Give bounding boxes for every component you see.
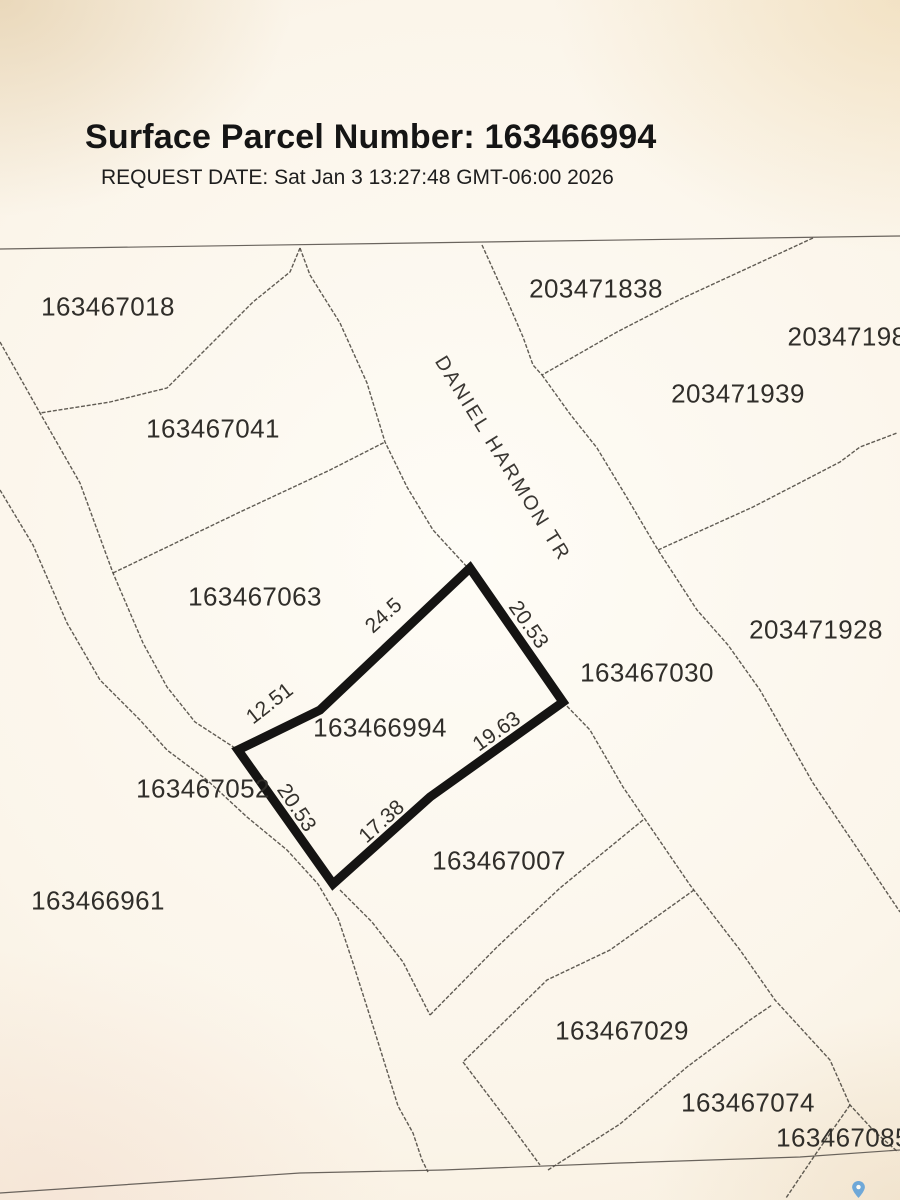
map-pin-icon xyxy=(852,1181,865,1198)
parcel-label-163466961: 163466961 xyxy=(31,886,165,917)
boundary-street-east-upper xyxy=(482,245,542,375)
parcel-label-163467029: 163467029 xyxy=(555,1016,689,1047)
boundary-bdy-041-063 xyxy=(113,442,385,573)
boundary-bdy-838-939 xyxy=(542,238,813,375)
parcel-label-163467030: 163467030 xyxy=(580,658,714,689)
parcel-map: 1634670181634670412034718382034719820347… xyxy=(0,0,900,1200)
boundary-bdy-018-041 xyxy=(40,248,300,413)
boundary-map-bottom-edge xyxy=(0,1150,900,1193)
boundary-bdy-939-928 xyxy=(658,433,897,550)
boundary-street-west xyxy=(300,248,468,568)
parcel-label-163467018: 163467018 xyxy=(41,292,175,323)
parcel-label-163467063: 163467063 xyxy=(188,582,322,613)
parcel-label-163467007: 163467007 xyxy=(432,846,566,877)
boundary-east-block-west xyxy=(563,702,898,1152)
parcel-label-203471939: 203471939 xyxy=(671,379,805,410)
parcel-label-203471928: 203471928 xyxy=(749,615,883,646)
parcel-label-163467085: 163467085 xyxy=(776,1123,900,1154)
boundary-creek-east xyxy=(0,342,238,750)
boundary-bdy-007-sw xyxy=(340,890,430,1015)
parcel-label-163467041: 163467041 xyxy=(146,414,280,445)
parcel-label-163466994: 163466994 xyxy=(313,713,447,744)
boundary-bdy-029-sw xyxy=(463,1062,540,1165)
parcel-label-20347198: 20347198 xyxy=(788,322,900,353)
parcel-label-163467074: 163467074 xyxy=(681,1088,815,1119)
boundary-map-top-edge xyxy=(0,236,900,249)
parcel-boundaries-svg xyxy=(0,0,900,1200)
parcel-label-163467052: 163467052 xyxy=(136,774,270,805)
parcel-label-203471838: 203471838 xyxy=(529,274,663,305)
scanned-parcel-map-document: Surface Parcel Number: 163466994 REQUEST… xyxy=(0,0,900,1200)
